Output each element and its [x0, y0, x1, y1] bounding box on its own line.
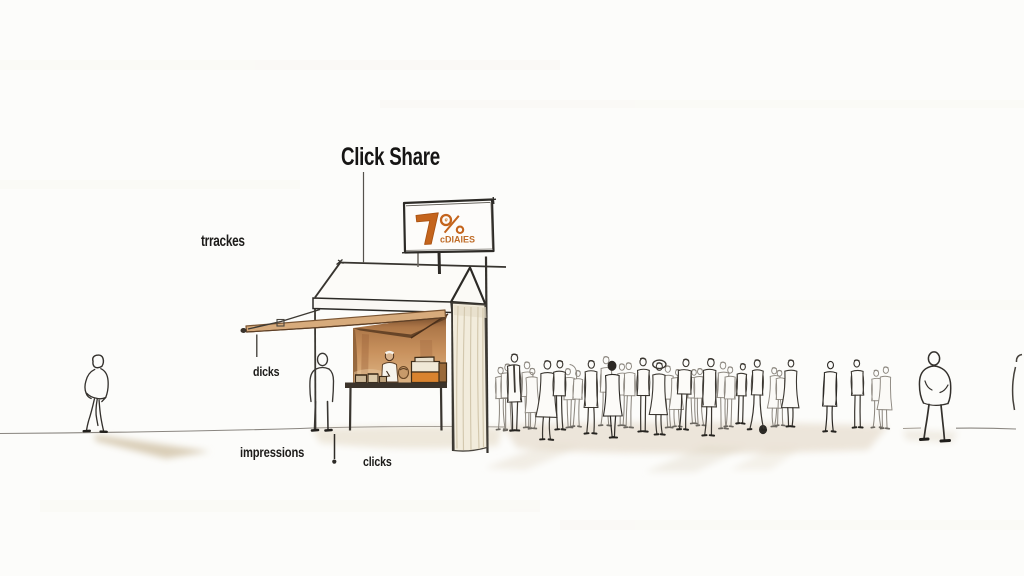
svg-text:cDIAIES: cDIAIES [440, 235, 475, 245]
